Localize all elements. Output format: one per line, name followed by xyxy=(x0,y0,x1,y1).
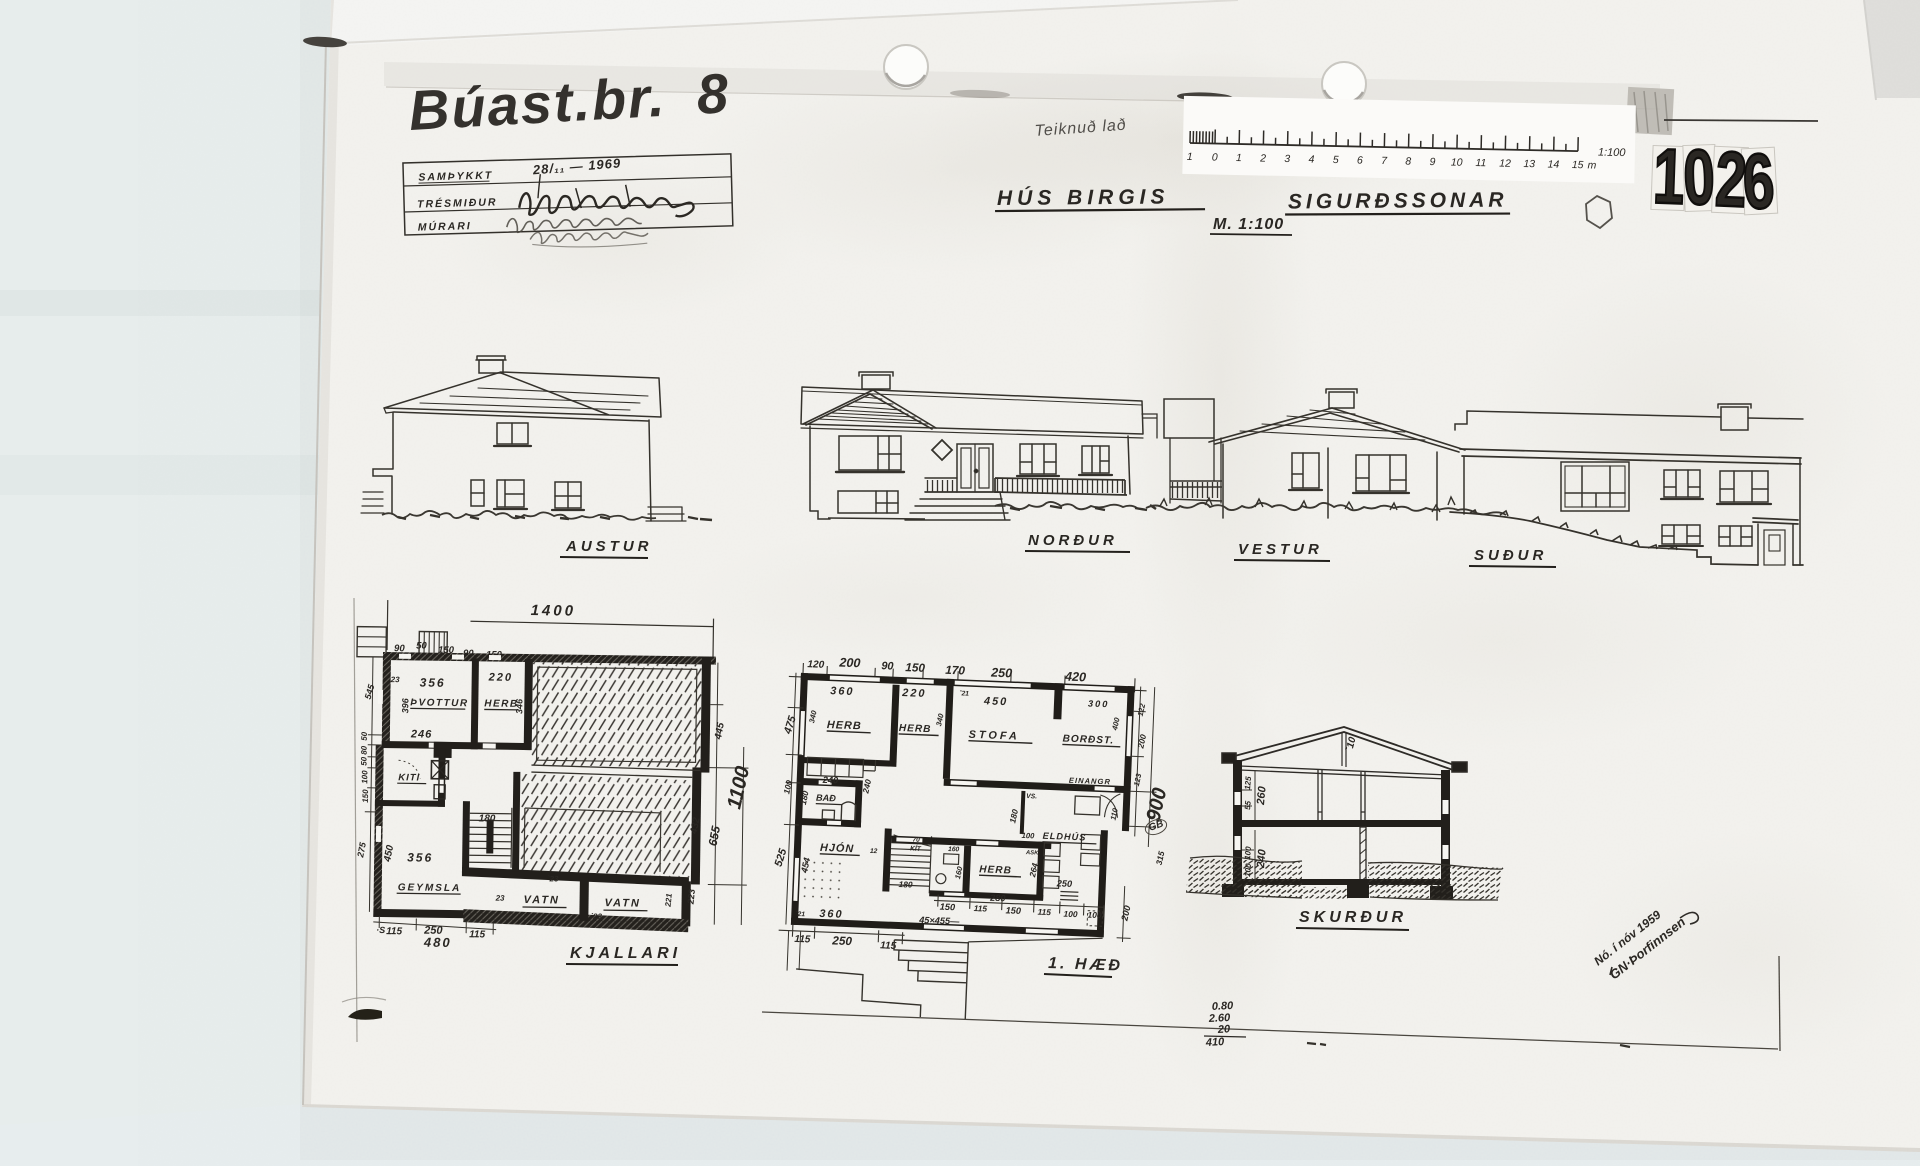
svg-text:KJALLARI: KJALLARI xyxy=(570,945,681,962)
svg-text:150: 150 xyxy=(361,789,370,803)
svg-text:SUÐUR: SUÐUR xyxy=(1474,547,1547,564)
svg-text:120: 120 xyxy=(807,659,825,671)
svg-text:0.80: 0.80 xyxy=(1212,1000,1235,1013)
svg-text:180: 180 xyxy=(479,813,496,824)
svg-text:ASK: ASK xyxy=(1025,850,1039,857)
svg-text:KITI: KITI xyxy=(398,772,420,783)
svg-text:50: 50 xyxy=(359,756,368,766)
svg-text:410: 410 xyxy=(1205,1036,1226,1049)
svg-text:280: 280 xyxy=(989,893,1007,904)
svg-text:1400: 1400 xyxy=(531,602,577,620)
svg-text:70: 70 xyxy=(912,837,920,844)
svg-text:20: 20 xyxy=(1217,1023,1232,1036)
svg-text:250: 250 xyxy=(831,933,853,948)
svg-text:180: 180 xyxy=(898,879,913,890)
svg-text:m: m xyxy=(1587,159,1596,171)
svg-text:220: 220 xyxy=(901,687,927,700)
svg-text:BAÐ: BAÐ xyxy=(816,793,837,804)
svg-text:346: 346 xyxy=(514,698,524,714)
svg-text:SIGURĐSSONAR: SIGURĐSSONAR xyxy=(1288,189,1508,214)
svg-text:125: 125 xyxy=(1243,776,1253,791)
svg-text:1. HÆÐ: 1. HÆÐ xyxy=(1048,955,1123,975)
svg-text:1: 1 xyxy=(1187,151,1193,163)
svg-text:1: 1 xyxy=(1652,132,1686,220)
svg-text:6: 6 xyxy=(1357,155,1363,167)
svg-text:ˇ21: ˇ21 xyxy=(959,689,969,697)
svg-text:1:100: 1:100 xyxy=(1598,147,1627,160)
svg-text:50: 50 xyxy=(360,731,369,741)
svg-text:0: 0 xyxy=(1212,151,1218,163)
svg-text:50: 50 xyxy=(416,640,427,651)
svg-text:ÞVOTTUR: ÞVOTTUR xyxy=(410,697,468,709)
svg-text:150: 150 xyxy=(905,660,926,675)
svg-text:170: 170 xyxy=(945,663,966,678)
svg-text:260: 260 xyxy=(1255,785,1269,806)
svg-text:10: 10 xyxy=(1451,156,1463,168)
svg-text:220: 220 xyxy=(488,671,514,683)
svg-text:HÚS BIRGIS: HÚS BIRGIS xyxy=(997,185,1170,211)
svg-text:12: 12 xyxy=(870,848,878,855)
svg-text:115: 115 xyxy=(469,929,486,940)
svg-text:5: 5 xyxy=(1333,154,1339,166)
svg-text:HERB: HERB xyxy=(827,719,862,732)
svg-text:9: 9 xyxy=(1429,156,1435,168)
svg-text:8: 8 xyxy=(1405,156,1411,168)
svg-text:NORÐUR: NORÐUR xyxy=(1028,532,1118,549)
svg-text:246: 246 xyxy=(410,728,433,740)
svg-text:420: 420 xyxy=(1064,669,1087,684)
svg-text:90: 90 xyxy=(881,660,894,672)
svg-text:360: 360 xyxy=(830,685,855,698)
svg-text:HJÓN: HJÓN xyxy=(820,841,855,855)
svg-text:HERB: HERB xyxy=(979,864,1012,876)
svg-text:KÍT: KÍT xyxy=(910,843,922,852)
svg-text:115: 115 xyxy=(974,903,988,914)
svg-text:6: 6 xyxy=(1741,137,1777,226)
svg-text:100: 100 xyxy=(1087,910,1102,921)
svg-text:GEYMSLA: GEYMSLA xyxy=(398,882,462,894)
svg-text:200: 200 xyxy=(838,655,861,670)
svg-text:11: 11 xyxy=(1475,157,1486,169)
svg-text:ˋ23: ˋ23 xyxy=(590,912,602,921)
svg-text:100: 100 xyxy=(1063,909,1078,920)
svg-text:3: 3 xyxy=(1284,153,1290,165)
svg-text:240: 240 xyxy=(822,775,840,786)
svg-text:115: 115 xyxy=(794,934,811,946)
svg-text:VATN: VATN xyxy=(604,897,640,910)
svg-text:55: 55 xyxy=(1243,800,1253,810)
svg-text:80: 80 xyxy=(360,745,369,755)
svg-text:4: 4 xyxy=(1308,153,1314,165)
svg-text:250: 250 xyxy=(990,666,1013,681)
svg-text:15: 15 xyxy=(1572,159,1584,171)
svg-text:150: 150 xyxy=(1005,905,1022,916)
svg-text:100: 100 xyxy=(360,770,369,784)
svg-text:23: 23 xyxy=(495,894,506,903)
svg-text:240: 240 xyxy=(1255,848,1269,869)
svg-text:480: 480 xyxy=(423,935,452,950)
svg-text:VESTUR: VESTUR xyxy=(1238,541,1323,558)
svg-text:SKURÐUR: SKURÐUR xyxy=(1299,909,1407,926)
svg-text:HERB: HERB xyxy=(899,723,932,735)
svg-text:100: 100 xyxy=(1243,846,1253,861)
svg-text:0: 0 xyxy=(1682,133,1716,221)
svg-text:M. 1:100: M. 1:100 xyxy=(1213,216,1284,233)
svg-text:45×455—: 45×455— xyxy=(918,915,960,927)
svg-text:12: 12 xyxy=(1499,157,1511,169)
svg-text:150: 150 xyxy=(940,902,957,913)
svg-text:360: 360 xyxy=(819,908,844,921)
svg-text:MÚRARI: MÚRARI xyxy=(418,219,472,234)
svg-text:ELDHÚS: ELDHÚS xyxy=(1042,830,1086,843)
svg-text:TRÉSMIÐUR: TRÉSMIÐUR xyxy=(417,195,498,210)
svg-text:450: 450 xyxy=(983,695,1009,708)
svg-text:23: 23 xyxy=(390,675,401,684)
svg-text:396: 396 xyxy=(400,697,410,713)
svg-text:100: 100 xyxy=(1021,831,1035,841)
svg-text:356: 356 xyxy=(420,676,446,690)
svg-text:13: 13 xyxy=(1523,158,1535,170)
svg-text:223: 223 xyxy=(685,889,697,906)
svg-text:250: 250 xyxy=(1056,878,1074,889)
svg-text:14: 14 xyxy=(1547,158,1559,170)
svg-text:115: 115 xyxy=(386,926,403,937)
svg-text:·S: ·S xyxy=(376,925,385,935)
svg-text:`23: `23 xyxy=(547,874,559,883)
svg-text:AUSTUR: AUSTUR xyxy=(565,538,653,555)
svg-text:115: 115 xyxy=(1037,907,1051,918)
svg-text:300: 300 xyxy=(1088,698,1110,709)
svg-text:1: 1 xyxy=(1236,152,1242,164)
svg-text:VS.: VS. xyxy=(1026,793,1037,800)
svg-text:EINANGR: EINANGR xyxy=(1069,776,1111,787)
svg-text:100: 100 xyxy=(1243,863,1253,878)
svg-text:356: 356 xyxy=(407,850,433,864)
svg-text:ˇ21: ˇ21 xyxy=(795,910,805,918)
svg-text:2: 2 xyxy=(1259,152,1266,164)
svg-text:VATN: VATN xyxy=(524,894,560,907)
svg-text:221: 221 xyxy=(663,893,673,909)
svg-text:160: 160 xyxy=(948,846,960,853)
